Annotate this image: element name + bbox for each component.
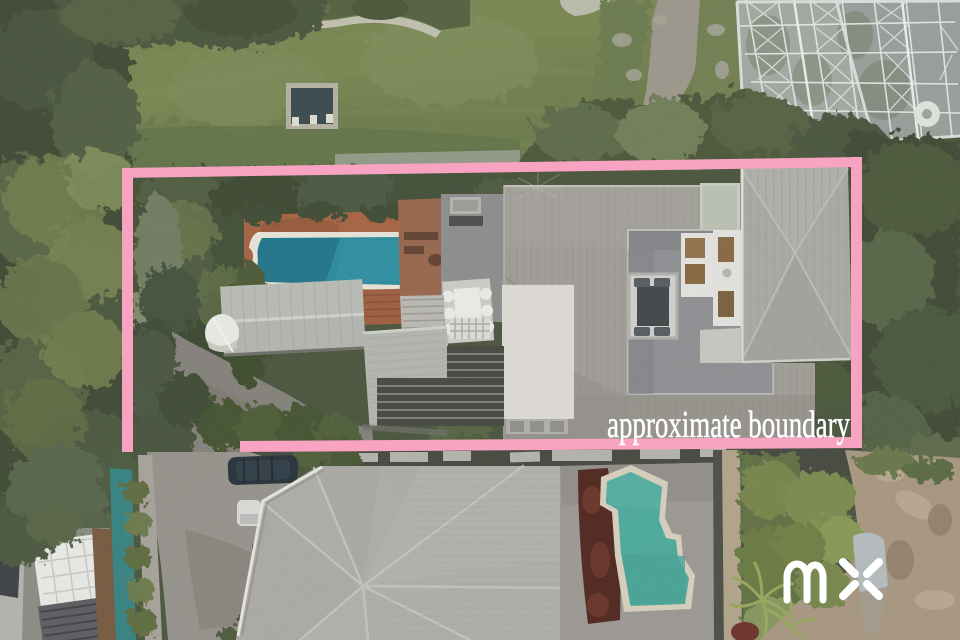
svg-text:approximate boundary: approximate boundary — [607, 404, 850, 446]
